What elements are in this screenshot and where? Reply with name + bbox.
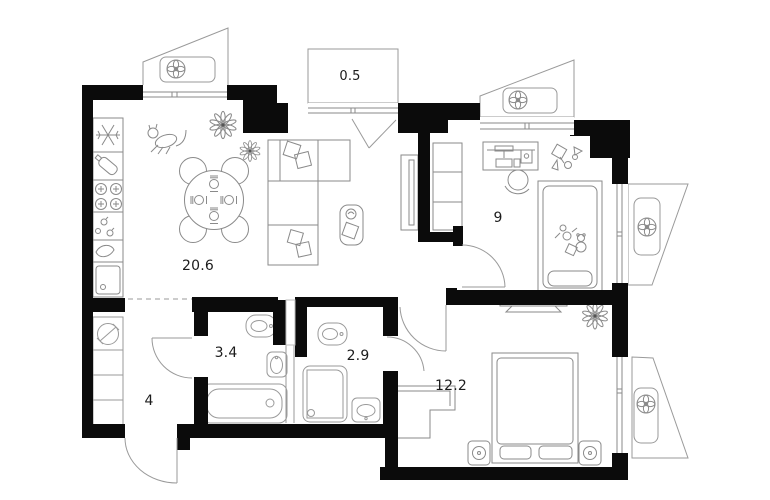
hall-closet [93, 317, 123, 427]
electric-panel-icon [97, 324, 119, 345]
tv-console-icon [401, 155, 418, 230]
toilet-icon [318, 323, 347, 345]
sofa-icon [268, 140, 350, 265]
cushion-icon [283, 141, 301, 159]
drain-icon [96, 245, 114, 256]
door-swing-icon [462, 245, 505, 287]
room-label-shower-room: 2.9 [347, 349, 370, 363]
stove-burners-icon [96, 184, 122, 210]
toilet-icon [246, 315, 276, 337]
snowflake-fridge-icon [96, 125, 120, 145]
window-icon [308, 103, 398, 118]
nightstand-icon [468, 441, 490, 465]
room-label-living-kitchen: 20.6 [182, 259, 214, 273]
window-icon [143, 85, 227, 100]
cushion-icon [295, 152, 312, 169]
floor-plan-canvas [0, 0, 770, 500]
room-label-master-bedroom: 12.2 [435, 379, 467, 393]
cat-icon [148, 124, 186, 154]
duct-shaft [286, 300, 295, 345]
single-bed-icon [538, 181, 602, 293]
room-label-hallway: 4 [144, 394, 153, 408]
desk-chair-icon [505, 170, 529, 194]
balcony-ac-right-lower [632, 357, 688, 458]
washbasin-icon [267, 352, 287, 377]
room-label-bathroom: 3.4 [215, 346, 238, 360]
window-icon [612, 184, 628, 283]
door-swing-icon [352, 119, 396, 148]
desk-icon [483, 142, 538, 170]
window-icon [612, 357, 628, 453]
walls [82, 85, 630, 480]
balcony-ac-right-upper [628, 184, 688, 285]
kitchen-cabinets [93, 118, 123, 297]
room-label-balcony: 0.5 [339, 70, 360, 84]
side-table-icon [340, 205, 363, 245]
bathtub-icon [202, 384, 287, 423]
cushion-icon [296, 242, 311, 257]
shower-cabin-icon [303, 366, 347, 422]
balcony-ac-top-left [143, 28, 228, 86]
toys-icon [552, 144, 582, 170]
double-bed-icon [492, 353, 578, 463]
wardrobe-icon [433, 143, 462, 230]
balcony-ac-top-right [480, 60, 574, 117]
room-label-kids-bedroom: 9 [493, 211, 502, 225]
window-icon [480, 117, 574, 135]
door-swing-icon [152, 338, 192, 378]
dining-set [180, 158, 249, 243]
bottle-icon [93, 153, 119, 177]
door-swing-icon [125, 438, 177, 483]
drops-icon [96, 217, 115, 236]
door-swing-icon [400, 305, 446, 351]
kitchen-sink-icon [96, 266, 120, 294]
nightstand-icon [579, 441, 601, 465]
washbasin-icon [352, 398, 380, 422]
floor-plan: 20.6 0.5 9 3.4 2.9 12.2 4 [0, 0, 770, 500]
